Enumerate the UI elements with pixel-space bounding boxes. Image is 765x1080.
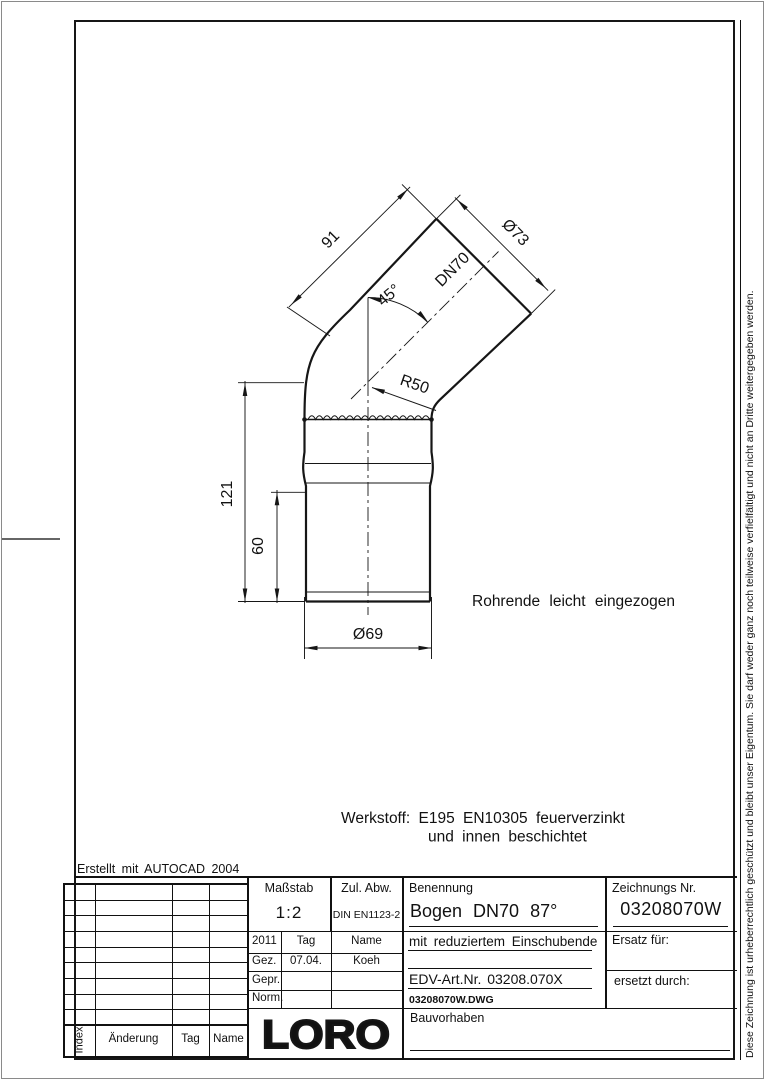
svg-text:LORO: LORO bbox=[262, 1013, 390, 1056]
note-material-line2: und innen beschichtet bbox=[428, 829, 588, 846]
index-label-cell: Index bbox=[63, 1024, 95, 1056]
dim-angle-label: 45° bbox=[374, 281, 403, 310]
zul-abw-value: DIN EN1123-2 bbox=[331, 909, 402, 921]
dwg-file: 03208070W.DWG bbox=[409, 994, 494, 1006]
note-material-line1: Werkstoff: E195 EN10305 feuerverzinkt bbox=[341, 810, 625, 827]
subtitle-text: mit reduziertem Einschubende bbox=[409, 934, 597, 949]
dim-dn70-label: DN70 bbox=[432, 249, 473, 290]
index-label: Index bbox=[73, 1027, 85, 1054]
year-cell: 2011 bbox=[252, 935, 277, 947]
drawing-sheet: 91 Ø73 DN70 45° R50 121 60 Ø69 Rohrende … bbox=[0, 0, 765, 1080]
pipe-outline bbox=[303, 219, 531, 602]
centerlines bbox=[351, 252, 499, 616]
zeichnungs-nr-value: 03208070W bbox=[605, 899, 737, 920]
dim-r50-label: R50 bbox=[398, 372, 431, 398]
massstab-value: 1:2 bbox=[248, 903, 330, 923]
ersetzt-durch-label: ersetzt durch: bbox=[614, 974, 690, 988]
benennung-value: Bogen DN70 87° bbox=[410, 901, 557, 922]
dim-121-label: 121 bbox=[219, 481, 236, 508]
gez-label: Gez. bbox=[252, 955, 276, 967]
note-pipe-end: Rohrende leicht eingezogen bbox=[472, 593, 675, 610]
benennung-label: Benennung bbox=[409, 881, 473, 895]
dim-60-label: 60 bbox=[250, 537, 267, 555]
ersatz-fuer-label: Ersatz für: bbox=[612, 933, 669, 947]
name-header-cell: Name bbox=[331, 935, 402, 947]
edv-art-nr: EDV-Art.Nr. 03208.070X bbox=[409, 971, 563, 987]
zul-abw-label: Zul. Abw. bbox=[331, 881, 402, 895]
aenderung-label: Änderung bbox=[95, 1033, 172, 1045]
dim-91-label: 91 bbox=[319, 227, 344, 252]
rev-name-label: Name bbox=[209, 1033, 248, 1045]
massstab-label: Maßstab bbox=[248, 881, 330, 895]
loro-logo: LORO bbox=[258, 1012, 394, 1056]
dim-dia69-label: Ø69 bbox=[353, 626, 383, 643]
copyright-vertical-note: Diese Zeichnung ist urheberrechtlich ges… bbox=[744, 16, 758, 1058]
created-with-note: Erstellt mit AUTOCAD 2004 bbox=[77, 862, 239, 876]
zeichnungs-nr-label: Zeichnungs Nr. bbox=[612, 881, 696, 895]
dimension-lines bbox=[238, 184, 555, 659]
gez-name: Koeh bbox=[331, 955, 402, 967]
tag-header-cell: Tag bbox=[281, 935, 331, 947]
rev-tag-label: Tag bbox=[172, 1033, 209, 1045]
norm-label: Norm. bbox=[252, 992, 283, 1004]
bauvorhaben-label: Bauvorhaben bbox=[410, 1011, 484, 1025]
gez-date: 07.04. bbox=[281, 955, 331, 967]
gepr-label: Gepr. bbox=[252, 974, 280, 986]
dim-dia73-label: Ø73 bbox=[498, 216, 531, 249]
